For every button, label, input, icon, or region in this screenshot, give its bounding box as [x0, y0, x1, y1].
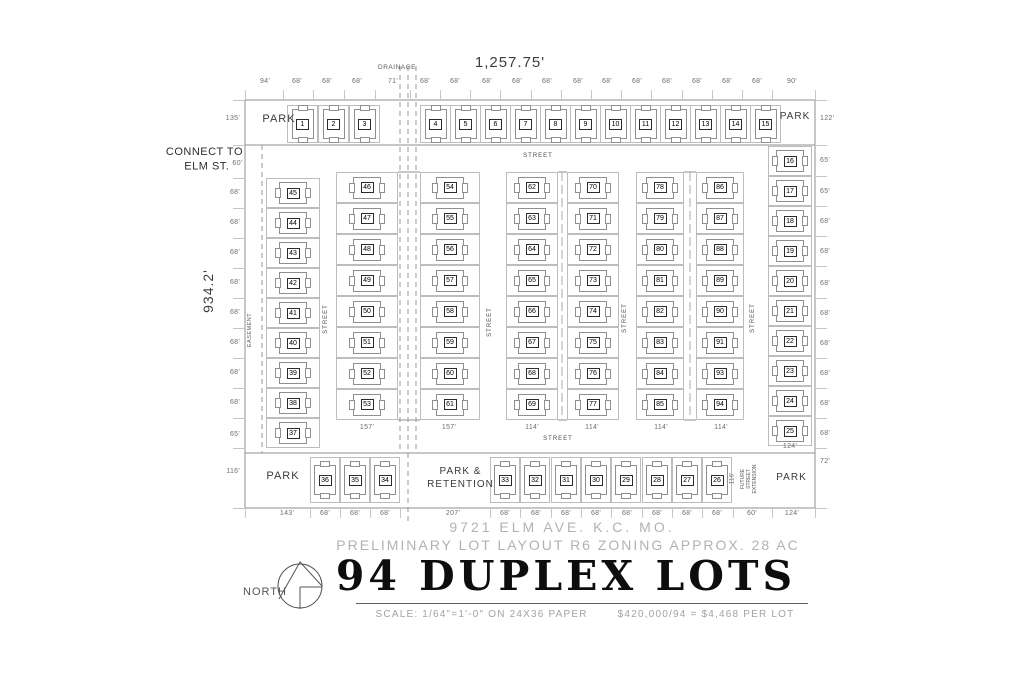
- dimension-label: 68': [591, 78, 623, 85]
- lot-parcel: 4: [420, 105, 451, 143]
- lot-parcel: 91: [696, 327, 744, 358]
- dimension-tick: [815, 358, 827, 359]
- duplex-building-footprint: 63: [518, 208, 546, 230]
- duplex-building-footprint: 11: [635, 109, 657, 139]
- lot-number: 85: [654, 399, 667, 410]
- lot-number: 72: [587, 244, 600, 255]
- duplex-building-footprint: 9: [575, 109, 597, 139]
- lot-parcel: 60: [420, 358, 480, 389]
- right-column-bottom-dimension: 124': [775, 443, 805, 450]
- lot-number: 17: [784, 186, 797, 197]
- lot-number: 35: [349, 475, 362, 486]
- duplex-building-footprint: 86: [706, 177, 734, 199]
- duplex-building-footprint: 37: [279, 422, 307, 444]
- lot-number: 27: [681, 475, 694, 486]
- dimension-label: 68': [741, 78, 773, 85]
- lot-parcel: 62: [506, 172, 558, 203]
- lot-parcel: 67: [506, 327, 558, 358]
- dimension-label: 60': [736, 510, 768, 517]
- lot-number: 19: [784, 246, 797, 257]
- dimension-label: 116': [202, 468, 240, 475]
- lot-parcel: 36: [310, 457, 340, 503]
- lot-parcel: 56: [420, 234, 480, 265]
- duplex-building-footprint: 6: [485, 109, 507, 139]
- lot-parcel: 45: [266, 178, 320, 208]
- duplex-building-footprint: 76: [579, 363, 607, 385]
- lot-parcel: 27: [672, 457, 702, 503]
- lot-parcel: 76: [567, 358, 619, 389]
- duplex-building-footprint: 29: [615, 465, 637, 495]
- dimension-label: 68': [409, 78, 441, 85]
- dimension-label: 68': [820, 248, 850, 255]
- lot-parcel: 2: [318, 105, 349, 143]
- lot-parcel: 48: [336, 234, 398, 265]
- dimension-tick: [233, 358, 245, 359]
- duplex-building-footprint: 44: [279, 212, 307, 234]
- lot-number: 93: [714, 368, 727, 379]
- dimension-label: 68': [671, 510, 703, 517]
- duplex-building-footprint: 74: [579, 301, 607, 323]
- lot-parcel: 89: [696, 265, 744, 296]
- duplex-building-footprint: 45: [279, 182, 307, 204]
- lot-number: 39: [287, 368, 300, 379]
- connect-dimension: 60': [232, 160, 243, 167]
- dimension-label: 68': [580, 510, 612, 517]
- lot-parcel: 23: [768, 356, 812, 386]
- drainage-label: DRAINAGE: [372, 64, 422, 71]
- lot-number: 9: [579, 119, 592, 130]
- connect-to-elm-st-note: CONNECT TO ELM ST.60': [105, 146, 243, 174]
- lot-number: 68: [526, 368, 539, 379]
- dimension-label: 68': [611, 510, 643, 517]
- lot-parcel: 8: [540, 105, 571, 143]
- duplex-building-footprint: 30: [585, 465, 607, 495]
- dimension-label: 68': [621, 78, 653, 85]
- lot-number: 84: [654, 368, 667, 379]
- duplex-building-footprint: 77: [579, 394, 607, 416]
- dimension-tick: [233, 448, 245, 449]
- duplex-building-footprint: 5: [455, 109, 477, 139]
- lot-parcel: 30: [581, 457, 611, 503]
- duplex-building-footprint: 64: [518, 239, 546, 261]
- duplex-building-footprint: 20: [776, 270, 804, 292]
- duplex-building-footprint: 2: [323, 109, 345, 139]
- duplex-building-footprint: 71: [579, 208, 607, 230]
- duplex-building-footprint: 51: [353, 332, 381, 354]
- dimension-tick: [233, 178, 245, 179]
- lot-parcel: 85: [636, 389, 684, 420]
- plat-drawing-sheet: 1234567891011121314151617181920212223242…: [0, 0, 1024, 683]
- lot-number: 22: [784, 336, 797, 347]
- duplex-building-footprint: 49: [353, 270, 381, 292]
- dimension-tick: [621, 90, 622, 100]
- lot-number: 64: [526, 244, 539, 255]
- lot-number: 48: [361, 244, 374, 255]
- dimension-tick: [651, 90, 652, 100]
- lot-number: 63: [526, 213, 539, 224]
- duplex-building-footprint: 72: [579, 239, 607, 261]
- dimension-label: 68': [641, 510, 673, 517]
- lot-number: 29: [620, 475, 633, 486]
- duplex-building-footprint: 22: [776, 330, 804, 352]
- park-retention-area: PARK & RETENTION: [408, 466, 513, 491]
- lot-number: 57: [444, 275, 457, 286]
- dimension-tick: [682, 90, 683, 100]
- dimension-tick: [815, 176, 827, 177]
- lot-parcel: 79: [636, 203, 684, 234]
- lot-parcel: 88: [696, 234, 744, 265]
- duplex-building-footprint: 35: [344, 465, 366, 495]
- dimension-tick: [815, 418, 827, 419]
- dimension-tick: [561, 90, 562, 100]
- duplex-building-footprint: 38: [279, 392, 307, 414]
- lot-parcel: 39: [266, 358, 320, 388]
- duplex-building-footprint: 65: [518, 270, 546, 292]
- dimension-tick: [233, 268, 245, 269]
- duplex-building-footprint: 87: [706, 208, 734, 230]
- lot-number: 28: [651, 475, 664, 486]
- duplex-building-footprint: 43: [279, 242, 307, 264]
- lot-number: 65: [526, 275, 539, 286]
- street-label-top: STREET: [508, 153, 568, 159]
- lot-parcel: 34: [370, 457, 400, 503]
- duplex-building-footprint: 32: [524, 465, 546, 495]
- lot-parcel: 9: [570, 105, 601, 143]
- dimension-label: 68': [309, 510, 341, 517]
- lot-parcel: 12: [660, 105, 691, 143]
- lot-number: 53: [361, 399, 374, 410]
- dimension-label: 71': [377, 78, 409, 85]
- duplex-building-footprint: 48: [353, 239, 381, 261]
- lot-number: 34: [379, 475, 392, 486]
- dimension-tick: [500, 90, 501, 100]
- dimension-tick: [233, 418, 245, 419]
- dimension-tick: [815, 145, 827, 146]
- dimension-label: 68': [711, 78, 743, 85]
- lot-parcel: 22: [768, 326, 812, 356]
- lot-number: 62: [526, 182, 539, 193]
- dimension-label: 135': [202, 115, 240, 122]
- lot-parcel: 87: [696, 203, 744, 234]
- lot-parcel: 81: [636, 265, 684, 296]
- dimension-label: 68': [820, 310, 850, 317]
- lot-parcel: 31: [551, 457, 581, 503]
- dimension-label: 68': [820, 218, 850, 225]
- duplex-building-footprint: 41: [279, 302, 307, 324]
- lot-number: 81: [654, 275, 667, 286]
- north-label: NORTH: [243, 586, 303, 598]
- duplex-building-footprint: 73: [579, 270, 607, 292]
- lot-number: 13: [699, 119, 712, 130]
- dimension-tick: [772, 90, 773, 100]
- duplex-building-footprint: 25: [776, 420, 804, 442]
- dimension-tick: [233, 508, 245, 509]
- lot-number: 88: [714, 244, 727, 255]
- duplex-building-footprint: 40: [279, 332, 307, 354]
- lot-number: 8: [549, 119, 562, 130]
- lot-number: 82: [654, 306, 667, 317]
- lot-number: 16: [784, 156, 797, 167]
- future-street-extension-label: FUTURE STREET EXTENSION: [740, 459, 760, 499]
- dimension-tick: [470, 90, 471, 100]
- duplex-building-footprint: 19: [776, 240, 804, 262]
- lot-number: 90: [714, 306, 727, 317]
- dimension-tick: [233, 388, 245, 389]
- lot-parcel: 10: [600, 105, 631, 143]
- duplex-building-footprint: 24: [776, 390, 804, 412]
- lot-parcel: 53: [336, 389, 398, 420]
- drawing-title: 94 DUPLEX LOTS: [296, 552, 836, 600]
- dimension-tick: [815, 100, 827, 101]
- duplex-building-footprint: 69: [518, 394, 546, 416]
- lot-parcel: 77: [567, 389, 619, 420]
- duplex-building-footprint: 84: [646, 363, 674, 385]
- lot-parcel: 29: [611, 457, 641, 503]
- duplex-building-footprint: 23: [776, 360, 804, 382]
- dimension-label: 68': [471, 78, 503, 85]
- dimension-label: 72': [820, 458, 850, 465]
- duplex-building-footprint: 93: [706, 363, 734, 385]
- duplex-building-footprint: 34: [374, 465, 396, 495]
- lot-number: 42: [287, 278, 300, 289]
- dimension-tick: [520, 508, 521, 518]
- future-street-dimension: 116': [729, 464, 738, 494]
- duplex-building-footprint: 4: [425, 109, 447, 139]
- dimension-tick: [712, 90, 713, 100]
- lot-number: 38: [287, 398, 300, 409]
- duplex-building-footprint: 54: [436, 177, 464, 199]
- lot-parcel: 64: [506, 234, 558, 265]
- lot-number: 11: [639, 119, 652, 130]
- dimension-label: 114': [705, 424, 737, 431]
- dimension-label: 68': [531, 78, 563, 85]
- lot-number: 37: [287, 428, 300, 439]
- street-label-vertical-1: STREET: [323, 289, 333, 349]
- lot-number: 3: [358, 119, 371, 130]
- dimension-label: 157': [351, 424, 383, 431]
- lot-parcel: 32: [520, 457, 550, 503]
- lot-number: 59: [444, 337, 457, 348]
- lot-parcel: 37: [266, 418, 320, 448]
- dimension-label: 68': [820, 430, 850, 437]
- duplex-building-footprint: 58: [436, 301, 464, 323]
- dimension-tick: [642, 508, 643, 518]
- scale-note: SCALE: 1/64"=1'-0" ON 24X36 PAPER: [376, 609, 588, 620]
- lot-parcel: 13: [690, 105, 721, 143]
- dimension-label: 68': [439, 78, 471, 85]
- dimension-tick: [283, 90, 284, 100]
- lot-parcel: 93: [696, 358, 744, 389]
- lot-parcel: 19: [768, 236, 812, 266]
- connect-line2: ELM ST.: [184, 160, 229, 172]
- lot-parcel: 57: [420, 265, 480, 296]
- street-label-vertical-3: STREET: [622, 288, 632, 348]
- duplex-building-footprint: 3: [354, 109, 376, 139]
- lot-number: 54: [444, 182, 457, 193]
- lot-parcel: 72: [567, 234, 619, 265]
- lot-parcel: 50: [336, 296, 398, 327]
- dimension-tick: [815, 206, 827, 207]
- easement-label: EASEMENT: [247, 300, 257, 360]
- lot-parcel: 75: [567, 327, 619, 358]
- lot-number: 67: [526, 337, 539, 348]
- lot-number: 2: [327, 119, 340, 130]
- dimension-label: 207': [437, 510, 469, 517]
- lot-number: 23: [784, 366, 797, 377]
- dimension-label: 68': [820, 370, 850, 377]
- dimension-label: 124': [776, 510, 808, 517]
- lot-number: 43: [287, 248, 300, 259]
- overall-height-dimension: 934.2': [200, 251, 216, 331]
- lot-parcel: 78: [636, 172, 684, 203]
- lot-parcel: 55: [420, 203, 480, 234]
- dimension-tick: [370, 508, 371, 518]
- dimension-tick: [591, 90, 592, 100]
- dimension-tick: [410, 90, 411, 100]
- lot-number: 70: [587, 182, 600, 193]
- lot-parcel: 73: [567, 265, 619, 296]
- lot-parcel: 43: [266, 238, 320, 268]
- lot-parcel: 14: [720, 105, 751, 143]
- dimension-tick: [233, 238, 245, 239]
- dimension-label: 90': [776, 78, 808, 85]
- lot-number: 46: [361, 182, 374, 193]
- street-label-bottom: STREET: [528, 436, 588, 442]
- dimension-label: 68': [820, 340, 850, 347]
- lot-parcel: 47: [336, 203, 398, 234]
- lot-number: 50: [361, 306, 374, 317]
- price-note: $420,000/94 = $4,468 PER LOT: [618, 609, 795, 620]
- lot-parcel: 82: [636, 296, 684, 327]
- dimension-label: 65': [820, 188, 850, 195]
- dimension-label: 122': [820, 115, 850, 122]
- duplex-building-footprint: 85: [646, 394, 674, 416]
- dimension-tick: [551, 508, 552, 518]
- lot-parcel: 20: [768, 266, 812, 296]
- lot-number: 58: [444, 306, 457, 317]
- lot-number: 26: [711, 475, 724, 486]
- dimension-label: 68': [489, 510, 521, 517]
- duplex-building-footprint: 13: [695, 109, 717, 139]
- lot-number: 18: [784, 216, 797, 227]
- dimension-label: 68': [369, 510, 401, 517]
- lot-parcel: 41: [266, 298, 320, 328]
- duplex-building-footprint: 78: [646, 177, 674, 199]
- lot-number: 7: [519, 119, 532, 130]
- lot-number: 25: [784, 426, 797, 437]
- dimension-tick: [233, 298, 245, 299]
- duplex-building-footprint: 80: [646, 239, 674, 261]
- dimension-label: 94': [249, 78, 281, 85]
- duplex-building-footprint: 31: [555, 465, 577, 495]
- dimension-tick: [581, 508, 582, 518]
- lot-parcel: 83: [636, 327, 684, 358]
- duplex-building-footprint: 28: [646, 465, 668, 495]
- lot-parcel: 7: [510, 105, 541, 143]
- duplex-building-footprint: 36: [314, 465, 336, 495]
- lot-number: 83: [654, 337, 667, 348]
- duplex-building-footprint: 83: [646, 332, 674, 354]
- lot-number: 78: [654, 182, 667, 193]
- park-area-top-left: PARK: [250, 113, 308, 125]
- lot-parcel: 44: [266, 208, 320, 238]
- duplex-building-footprint: 62: [518, 177, 546, 199]
- lot-parcel: 25: [768, 416, 812, 446]
- lot-number: 89: [714, 275, 727, 286]
- lot-parcel: 51: [336, 327, 398, 358]
- lot-parcel: 11: [630, 105, 661, 143]
- lot-number: 32: [529, 475, 542, 486]
- lot-parcel: 54: [420, 172, 480, 203]
- lot-parcel: 86: [696, 172, 744, 203]
- dimension-tick: [233, 328, 245, 329]
- dimension-label: 68': [550, 510, 582, 517]
- lot-number: 66: [526, 306, 539, 317]
- lot-parcel: 69: [506, 389, 558, 420]
- lot-number: 55: [444, 213, 457, 224]
- lot-number: 79: [654, 213, 667, 224]
- lot-number: 69: [526, 399, 539, 410]
- street-label-vertical-4: STREET: [750, 288, 760, 348]
- lot-parcel: 49: [336, 265, 398, 296]
- lot-parcel: 18: [768, 206, 812, 236]
- lot-parcel: 5: [450, 105, 481, 143]
- dimension-tick: [815, 508, 816, 518]
- lot-parcel: 17: [768, 176, 812, 206]
- dimension-label: 68': [311, 78, 343, 85]
- duplex-building-footprint: 42: [279, 272, 307, 294]
- dimension-label: 68': [651, 78, 683, 85]
- lot-number: 12: [669, 119, 682, 130]
- duplex-building-footprint: 94: [706, 394, 734, 416]
- lot-parcel: 68: [506, 358, 558, 389]
- duplex-building-footprint: 75: [579, 332, 607, 354]
- dimension-tick: [245, 90, 246, 100]
- dimension-tick: [313, 90, 314, 100]
- duplex-building-footprint: 46: [353, 177, 381, 199]
- dimension-tick: [531, 90, 532, 100]
- lot-number: 21: [784, 306, 797, 317]
- lot-number: 80: [654, 244, 667, 255]
- duplex-building-footprint: 57: [436, 270, 464, 292]
- dimension-label: 68': [202, 189, 240, 196]
- lot-parcel: 59: [420, 327, 480, 358]
- lot-number: 94: [714, 399, 727, 410]
- lot-number: 91: [714, 337, 727, 348]
- lot-number: 5: [459, 119, 472, 130]
- duplex-building-footprint: 18: [776, 210, 804, 232]
- duplex-building-footprint: 56: [436, 239, 464, 261]
- street-label-vertical-2: STREET: [487, 292, 497, 352]
- park-area-bottom-left: PARK: [252, 470, 314, 482]
- dimension-tick: [702, 508, 703, 518]
- lot-number: 20: [784, 276, 797, 287]
- lot-parcel: 70: [567, 172, 619, 203]
- lot-number: 73: [587, 275, 600, 286]
- dimension-tick: [490, 508, 491, 518]
- dimension-tick: [611, 508, 612, 518]
- lot-parcel: 63: [506, 203, 558, 234]
- dimension-label: 68': [202, 339, 240, 346]
- address-line: 9721 ELM AVE. K.C. MO.: [262, 519, 862, 535]
- dimension-tick: [815, 90, 816, 100]
- dimension-tick: [815, 266, 827, 267]
- dimension-tick: [440, 90, 441, 100]
- dimension-tick: [742, 90, 743, 100]
- duplex-building-footprint: 47: [353, 208, 381, 230]
- duplex-building-footprint: 17: [776, 180, 804, 202]
- dimension-label: 65': [202, 431, 240, 438]
